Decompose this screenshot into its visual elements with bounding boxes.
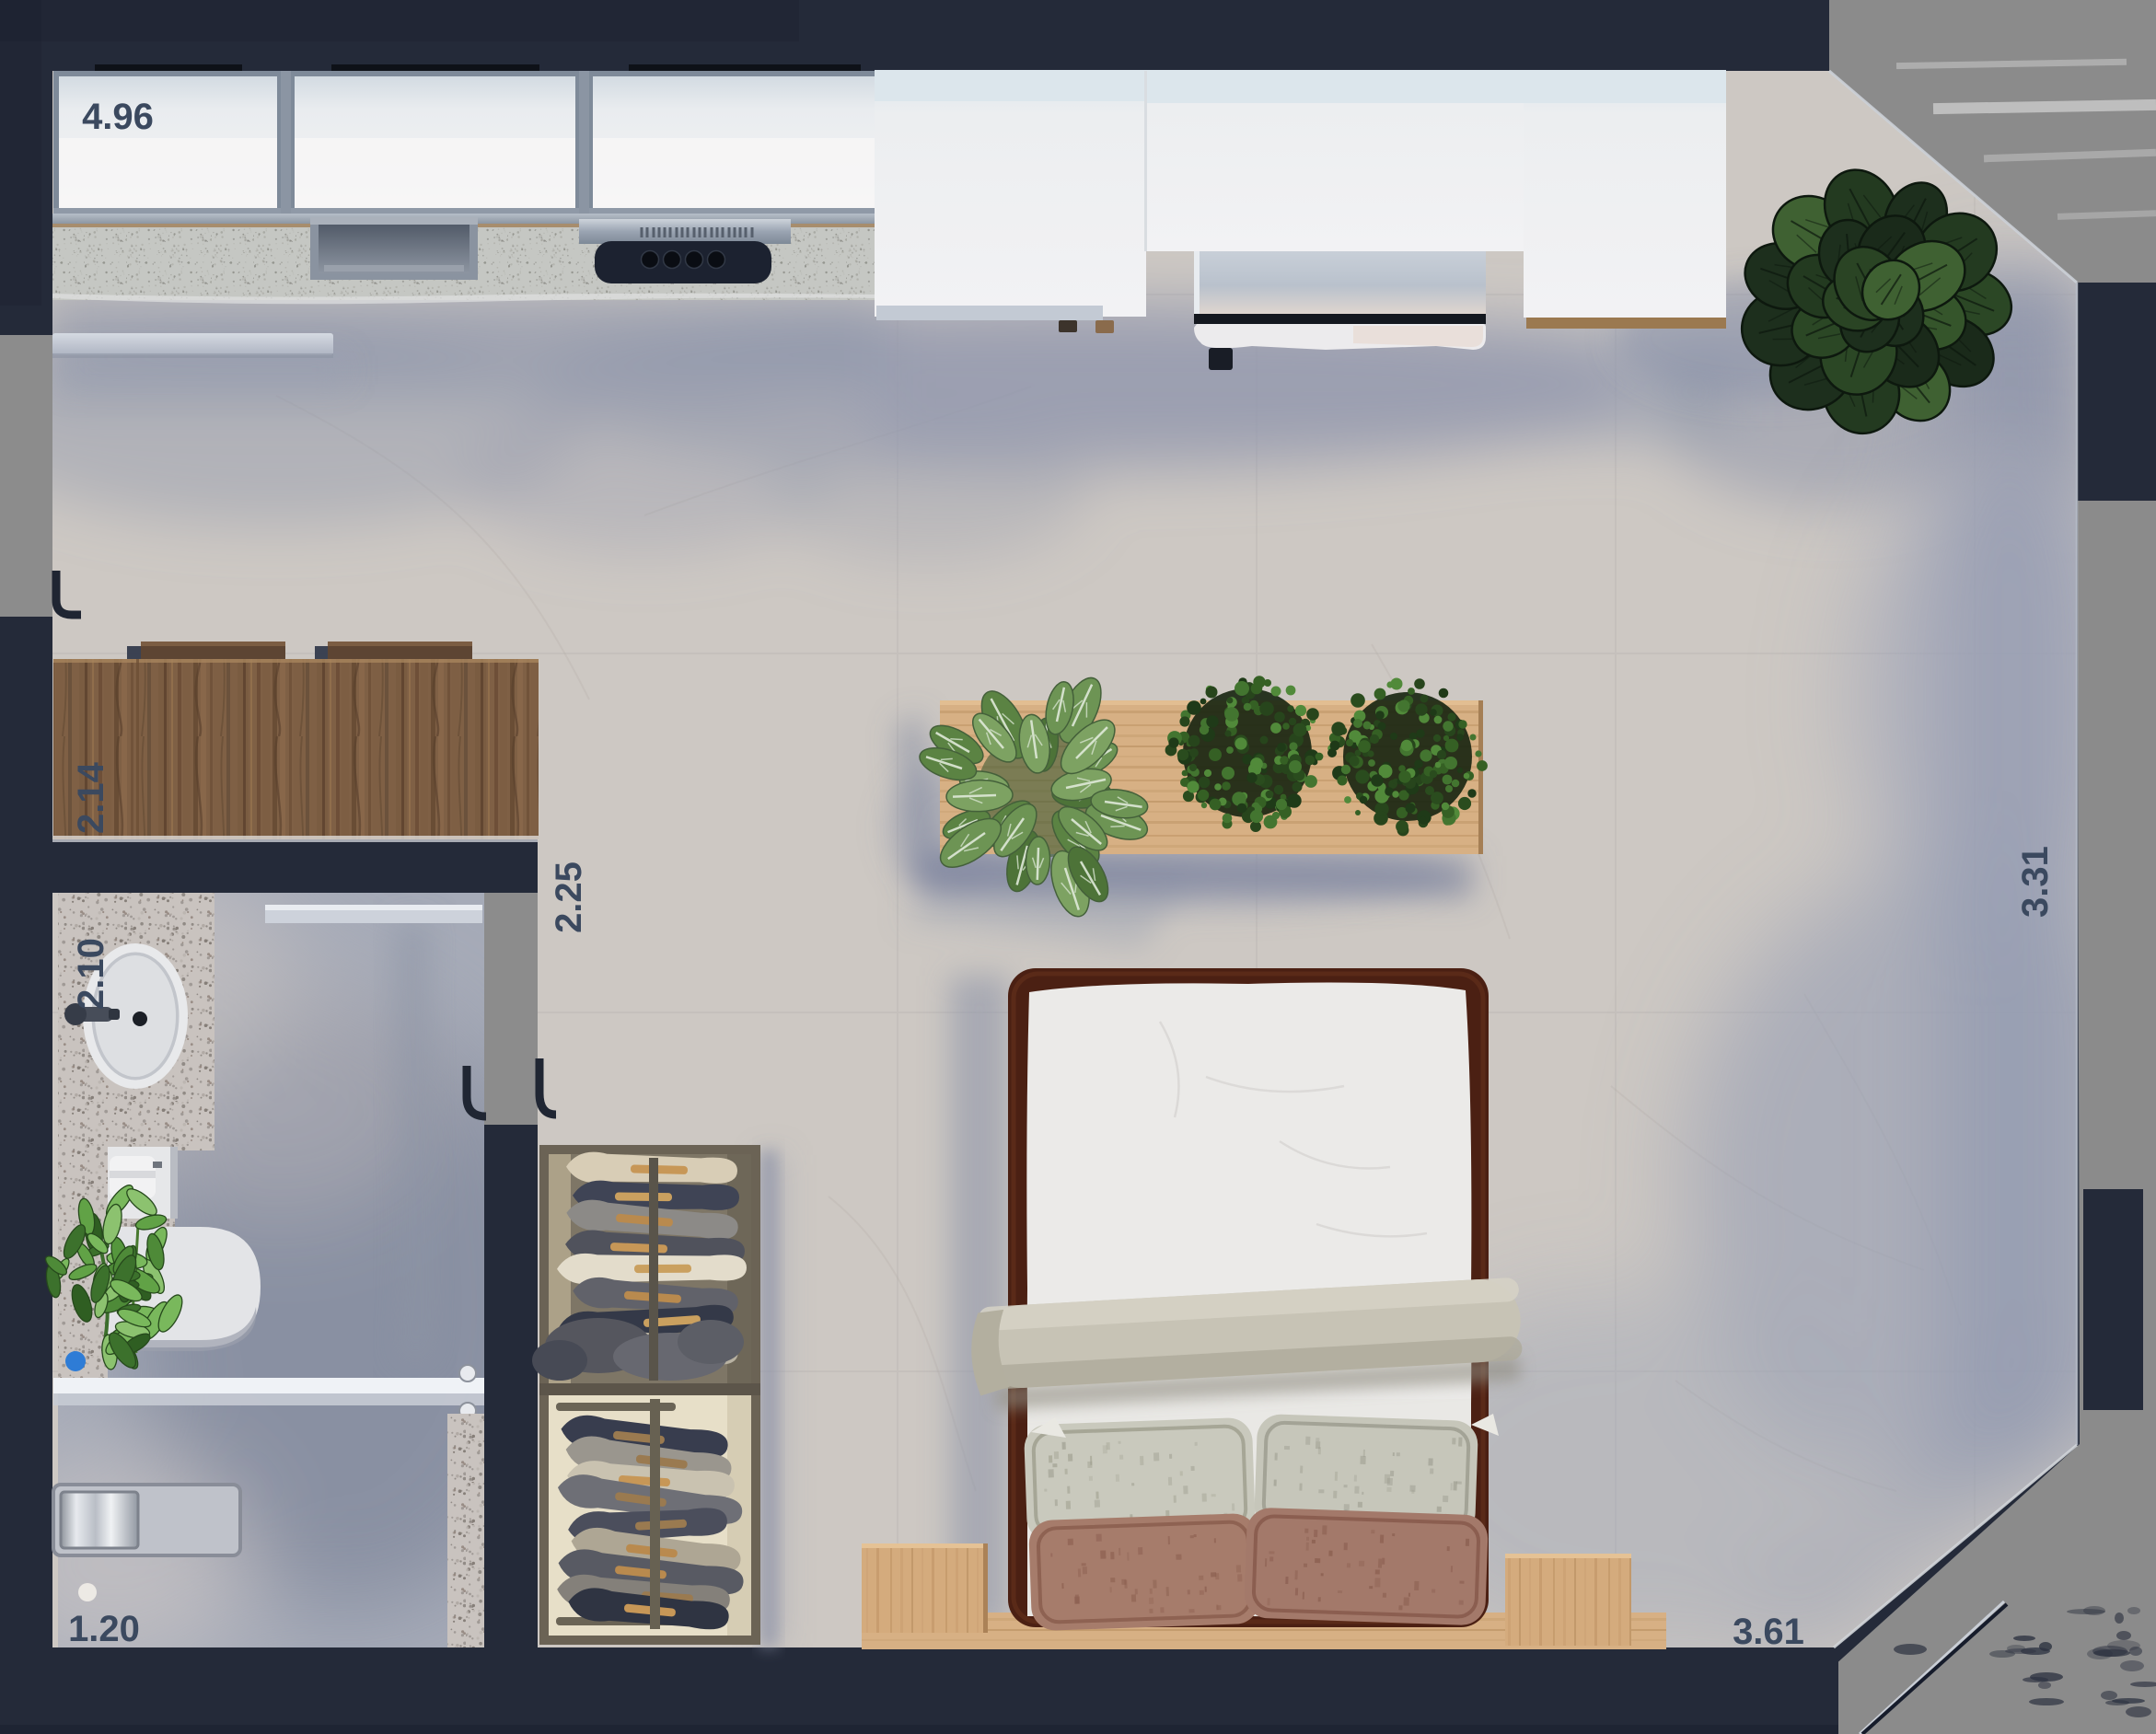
svg-text:2.25: 2.25 [549,861,589,933]
svg-text:2.14: 2.14 [71,761,111,834]
svg-text:3.61: 3.61 [1733,1612,1804,1652]
svg-text:1.20: 1.20 [68,1609,140,1649]
svg-text:3.31: 3.31 [2015,846,2056,918]
svg-text:2.10: 2.10 [71,938,111,1010]
svg-text:4.96: 4.96 [82,97,154,137]
